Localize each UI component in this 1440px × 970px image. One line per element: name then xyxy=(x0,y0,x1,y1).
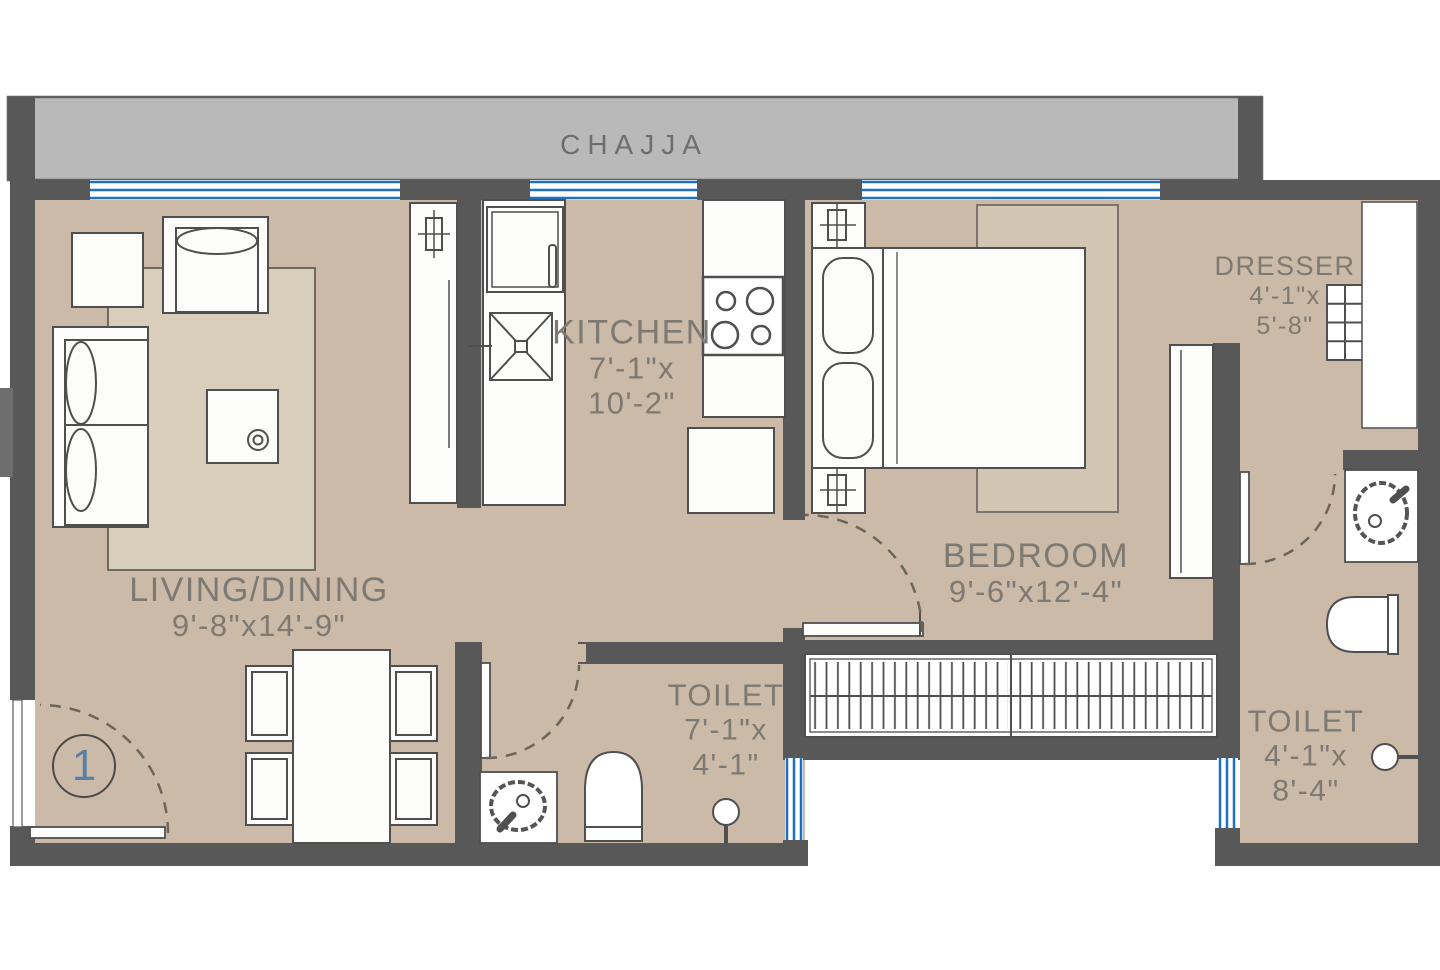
floor-plan: CHAJJA LIVING/DINING 9'-8"x14'-9" KITCHE… xyxy=(0,0,1440,970)
unit-number: 1 xyxy=(72,741,96,791)
room-dims: 9'-8"x14'-9" xyxy=(129,608,388,643)
window-living xyxy=(90,180,400,200)
room-name: DRESSER xyxy=(1214,251,1355,281)
room-dims-line1: 7'-1"x xyxy=(552,351,712,386)
hanging-wardrobe-icon xyxy=(805,654,1217,737)
duct xyxy=(1362,202,1417,428)
window-kitchen xyxy=(530,180,697,200)
toilet-right-label: TOILET 4'-1"x 8'-4" xyxy=(1248,704,1365,809)
floorplan-drawing xyxy=(0,0,1440,970)
dresser-label: DRESSER 4'-1"x 5'-8" xyxy=(1214,251,1355,341)
room-dims-line1: 7'-1"x xyxy=(668,713,785,748)
hob-icon xyxy=(703,277,783,355)
kitchen-label: KITCHEN 7'-1"x 10'-2" xyxy=(552,316,712,421)
wc-right-icon xyxy=(1327,595,1398,654)
coffee-table-icon xyxy=(207,390,278,463)
entrance-door-frame xyxy=(13,700,22,827)
window-toilet-mid xyxy=(785,758,803,840)
room-name: TOILET xyxy=(668,678,785,713)
bedroom-label: BEDROOM 9'-6"x12'-4" xyxy=(943,539,1129,609)
wc-icon xyxy=(585,752,642,841)
side-table-icon xyxy=(72,233,143,307)
room-dims-line1: 4'-1"x xyxy=(1248,739,1365,774)
room-dims-line2: 8'-4" xyxy=(1248,774,1365,809)
room-dims-line2: 10'-2" xyxy=(552,386,712,421)
room-dims-line2: 4'-1" xyxy=(668,748,785,783)
room-dims-line2: 5'-8" xyxy=(1214,311,1355,341)
chajja-label: CHAJJA xyxy=(560,129,708,161)
wash-basin-right-icon xyxy=(1355,483,1407,543)
refrigerator-icon xyxy=(487,207,563,292)
wash-basin-icon xyxy=(491,782,545,830)
room-dims-line1: 4'-1"x xyxy=(1214,281,1355,311)
room-name: BEDROOM xyxy=(943,539,1129,574)
window-toilet-right xyxy=(1217,758,1238,828)
bedside-table-icon-2 xyxy=(812,468,865,513)
room-name: LIVING/DINING xyxy=(129,573,388,608)
bedside-table-icon xyxy=(812,203,865,248)
room-dims: 9'-6"x12'-4" xyxy=(943,574,1129,609)
armchair-icon xyxy=(163,217,268,313)
double-bed-icon xyxy=(812,248,1085,468)
sliding-wardrobe-icon xyxy=(1170,345,1213,578)
unit-number-marker: 1 xyxy=(52,734,116,798)
foyer-cabinet-icon xyxy=(410,203,457,503)
living-dining-label: LIVING/DINING 9'-8"x14'-9" xyxy=(129,573,388,643)
room-name: KITCHEN xyxy=(552,316,712,351)
door-frame-notch xyxy=(578,644,586,662)
sofa-icon xyxy=(53,327,148,527)
toilet-mid-label: TOILET 7'-1"x 4'-1" xyxy=(668,678,785,783)
room-name: TOILET xyxy=(1248,704,1365,739)
washing-machine-icon xyxy=(688,428,774,513)
window-bedroom xyxy=(862,180,1160,200)
